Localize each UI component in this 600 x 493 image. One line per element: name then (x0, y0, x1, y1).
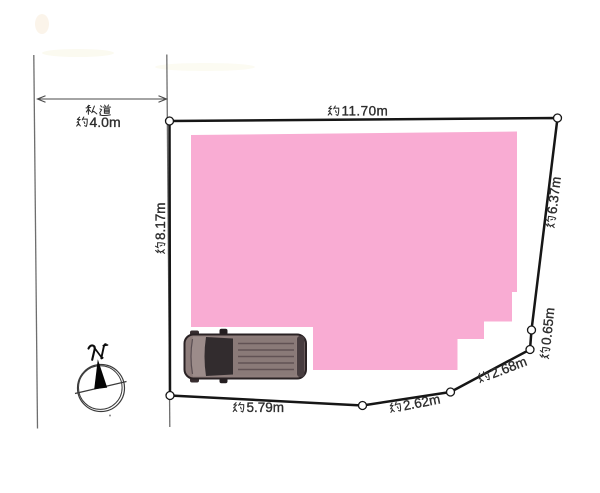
svg-text:11.70m: 11.70m (342, 104, 389, 119)
svg-text:8.17m: 8.17m (153, 202, 168, 240)
svg-text:4.0m: 4.0m (90, 114, 121, 130)
svg-text:5.79m: 5.79m (247, 400, 285, 415)
